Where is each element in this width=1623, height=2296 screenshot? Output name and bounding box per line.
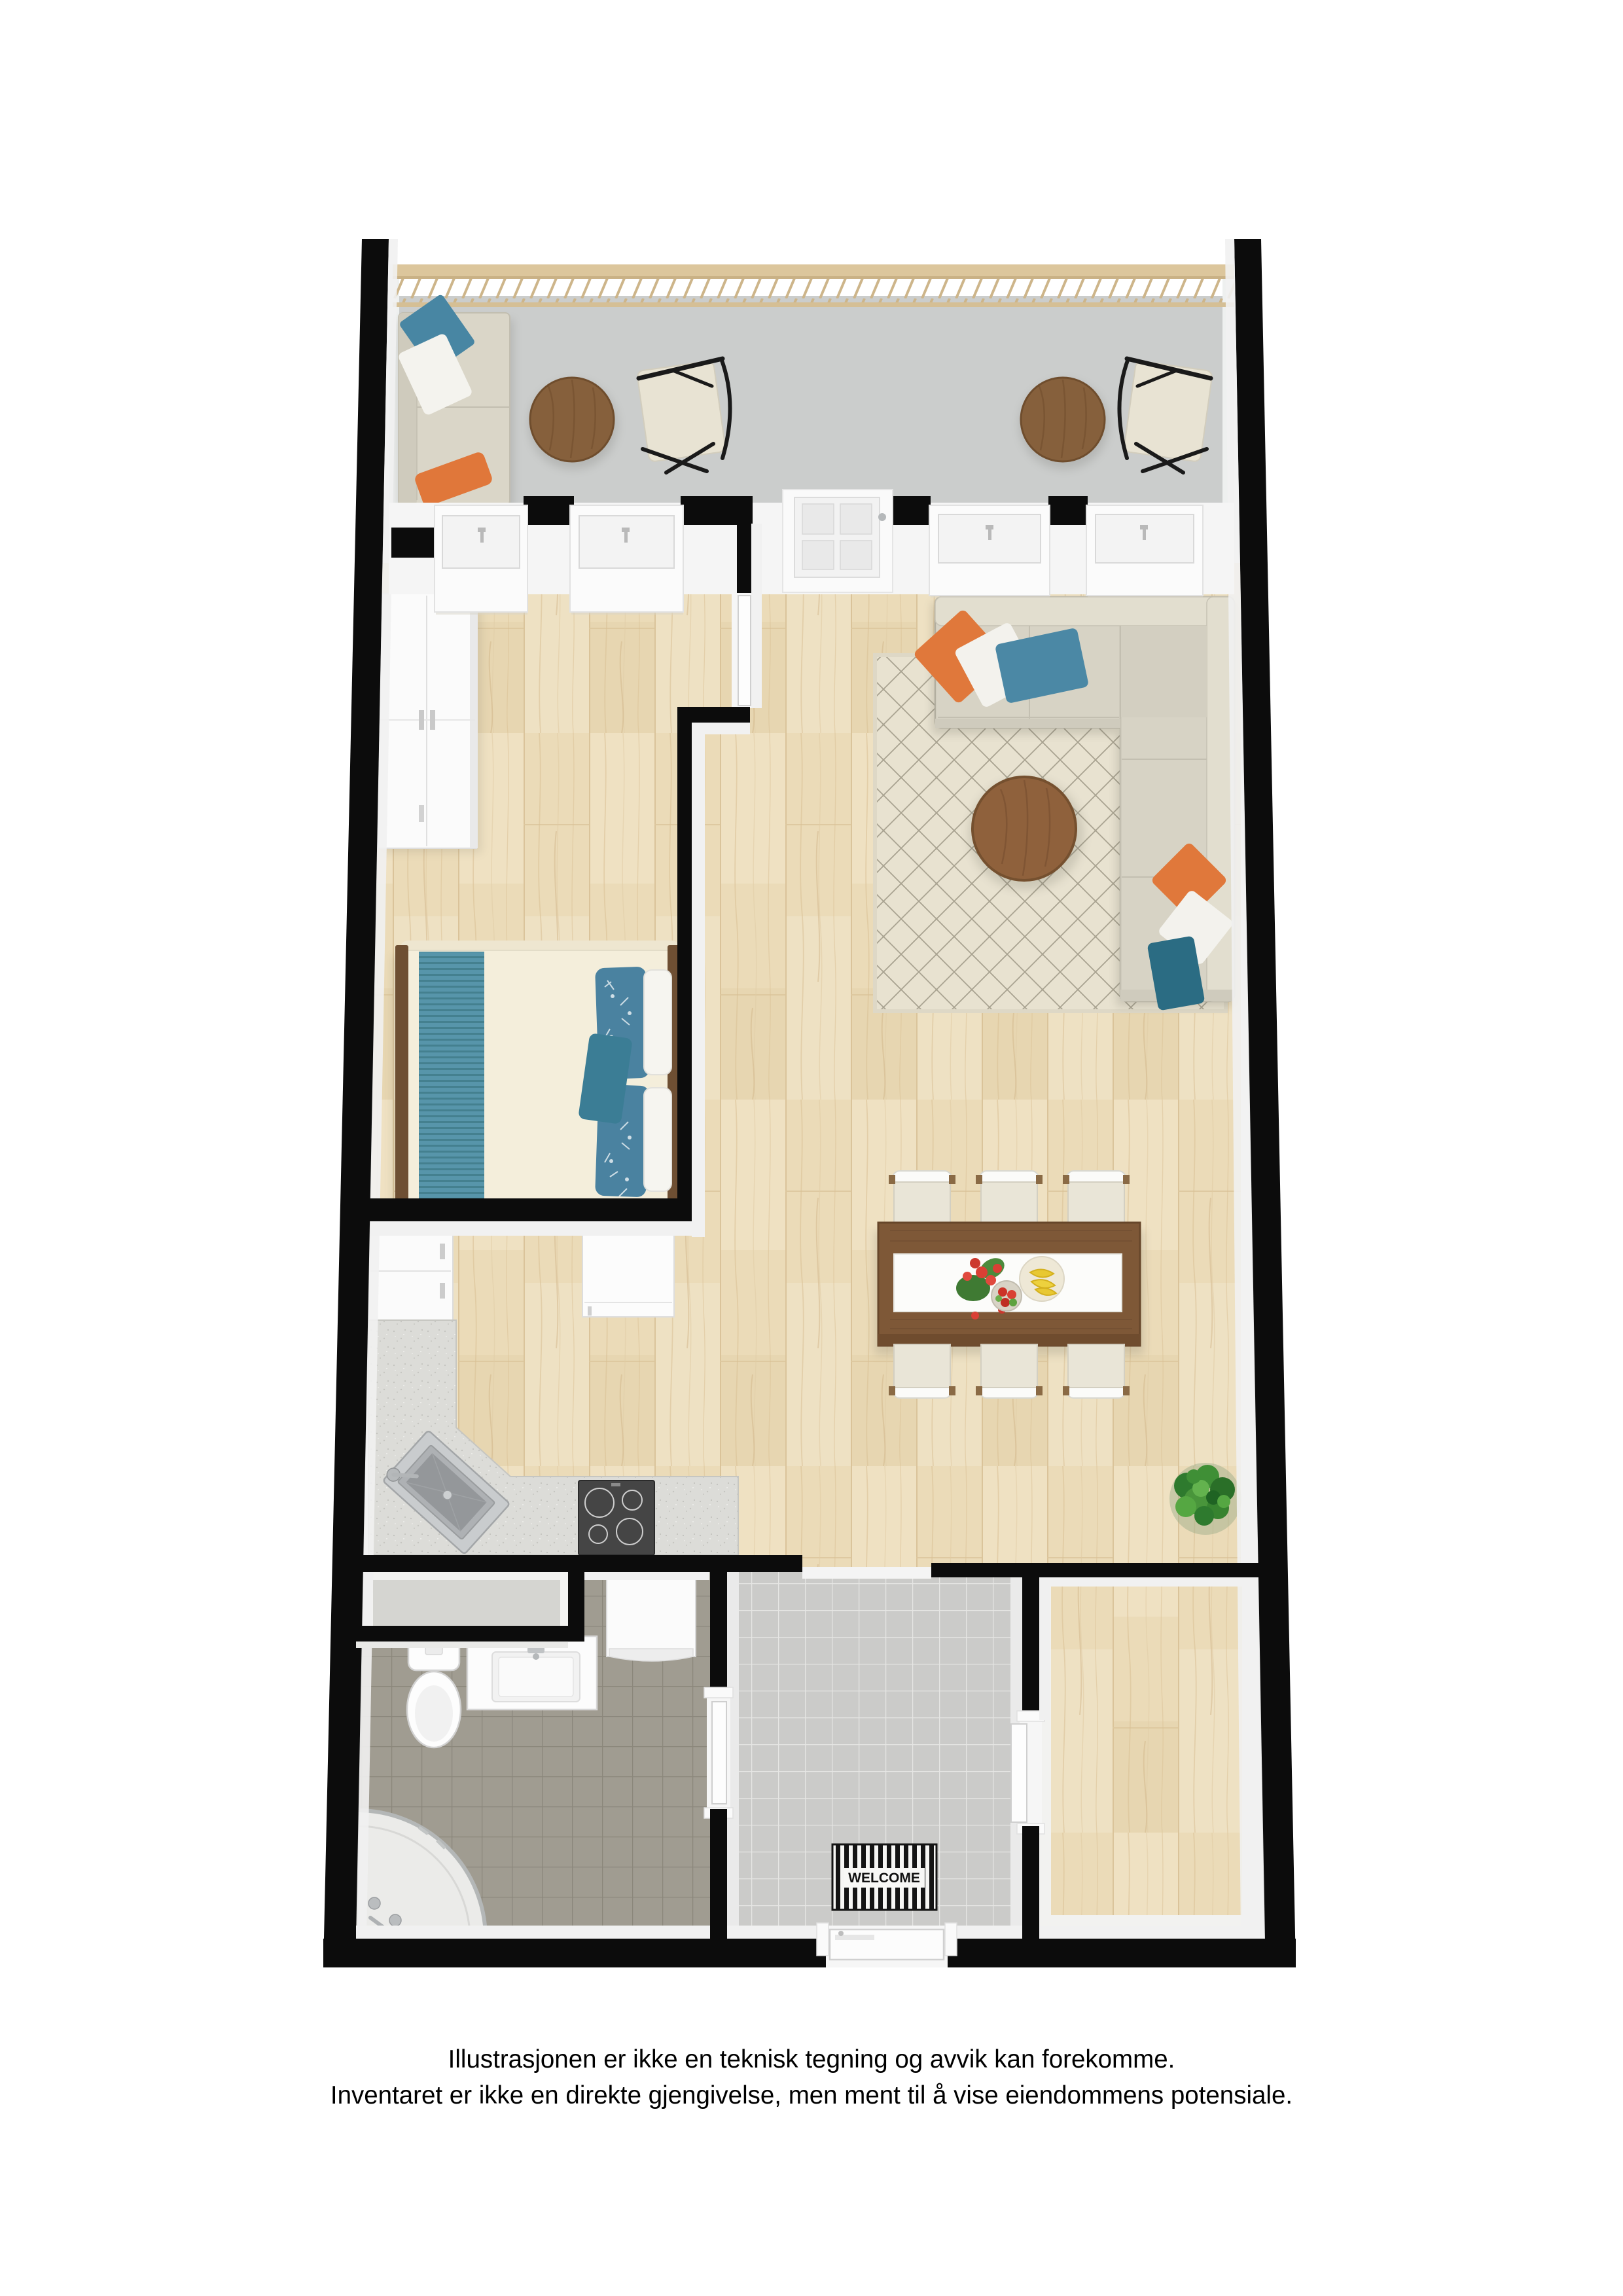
svg-text:WELCOME: WELCOME — [848, 1871, 920, 1886]
